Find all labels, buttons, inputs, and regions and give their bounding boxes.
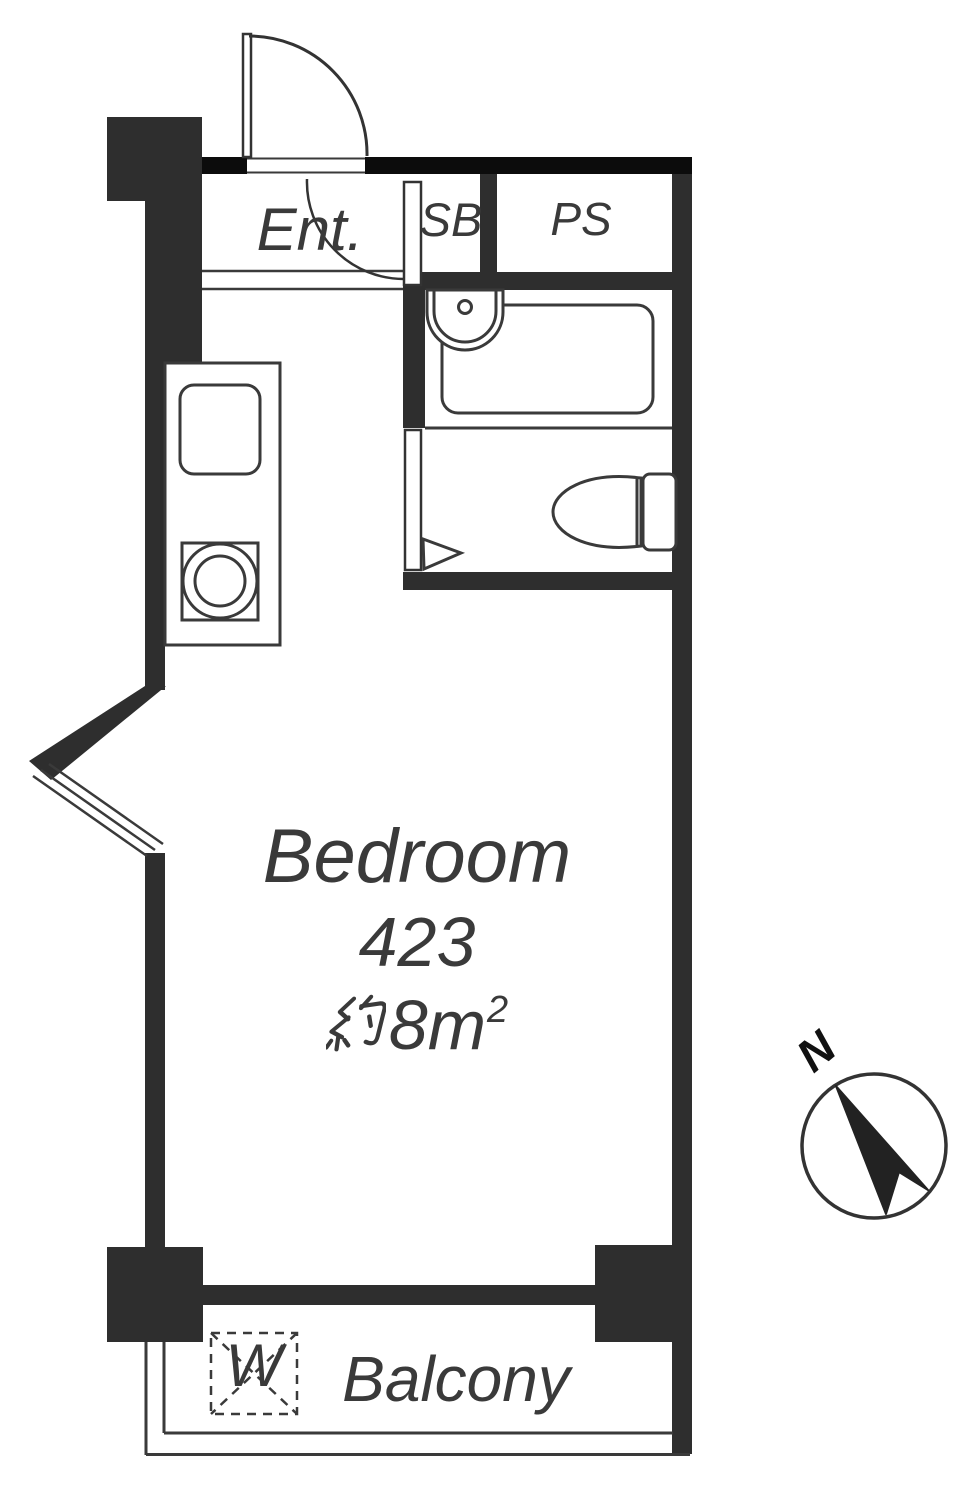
wall-block-bottom-left <box>107 1247 203 1342</box>
bay-window <box>33 764 163 856</box>
bedroom-area-label: 8m2 <box>167 990 667 1060</box>
wall-east-outer <box>672 157 692 1454</box>
kitchen-sink <box>180 385 260 474</box>
bay-window-line-2 <box>41 770 155 850</box>
entrance-door-leaf <box>243 34 251 157</box>
bedroom-area-value: 8m <box>389 986 486 1064</box>
door-swing-triangle <box>423 539 461 569</box>
floor-plan: Ent. SB PS Bedroom 423 8m2 Balcony W N <box>0 0 968 1492</box>
toilet-door-leaf <box>405 430 421 570</box>
wall-block-top-left <box>107 117 202 201</box>
bedroom-name-label: Bedroom <box>167 819 667 895</box>
kitchen <box>165 363 280 645</box>
bedroom-area-superscript: 2 <box>487 989 508 1031</box>
balcony-label: Balcony <box>306 1347 606 1411</box>
bay-window-line-3 <box>49 764 163 844</box>
bedroom-unit-label: 423 <box>167 907 667 977</box>
wall-bath-south <box>403 572 692 590</box>
entrance-label: Ent. <box>210 200 410 260</box>
wall-pillar-west-upper <box>145 201 202 363</box>
kanji-yaku-glyph <box>326 994 386 1054</box>
wall-top-left-stub <box>202 157 247 174</box>
bathroom <box>405 290 676 570</box>
wall-under-sb-ps <box>403 272 692 290</box>
shoe-box-label: SB <box>411 196 491 243</box>
bay-window-line-1 <box>33 776 147 856</box>
basin-tap <box>459 301 472 314</box>
washer-label: W <box>224 1336 284 1396</box>
wall-west-lower <box>145 853 165 1247</box>
compass <box>802 1074 946 1218</box>
wall-bath-west <box>403 290 425 428</box>
pipe-space-label: PS <box>531 196 631 242</box>
wall-west-kitchen <box>145 363 165 690</box>
entrance-door-arc <box>249 36 367 156</box>
compass-north-arrow <box>836 1086 928 1214</box>
toilet-bowl <box>553 477 641 548</box>
wall-south-bedroom <box>203 1285 595 1305</box>
wall-top-main <box>365 157 692 174</box>
wall-pillar-bottom-right <box>595 1245 672 1342</box>
toilet-tank <box>643 474 676 550</box>
